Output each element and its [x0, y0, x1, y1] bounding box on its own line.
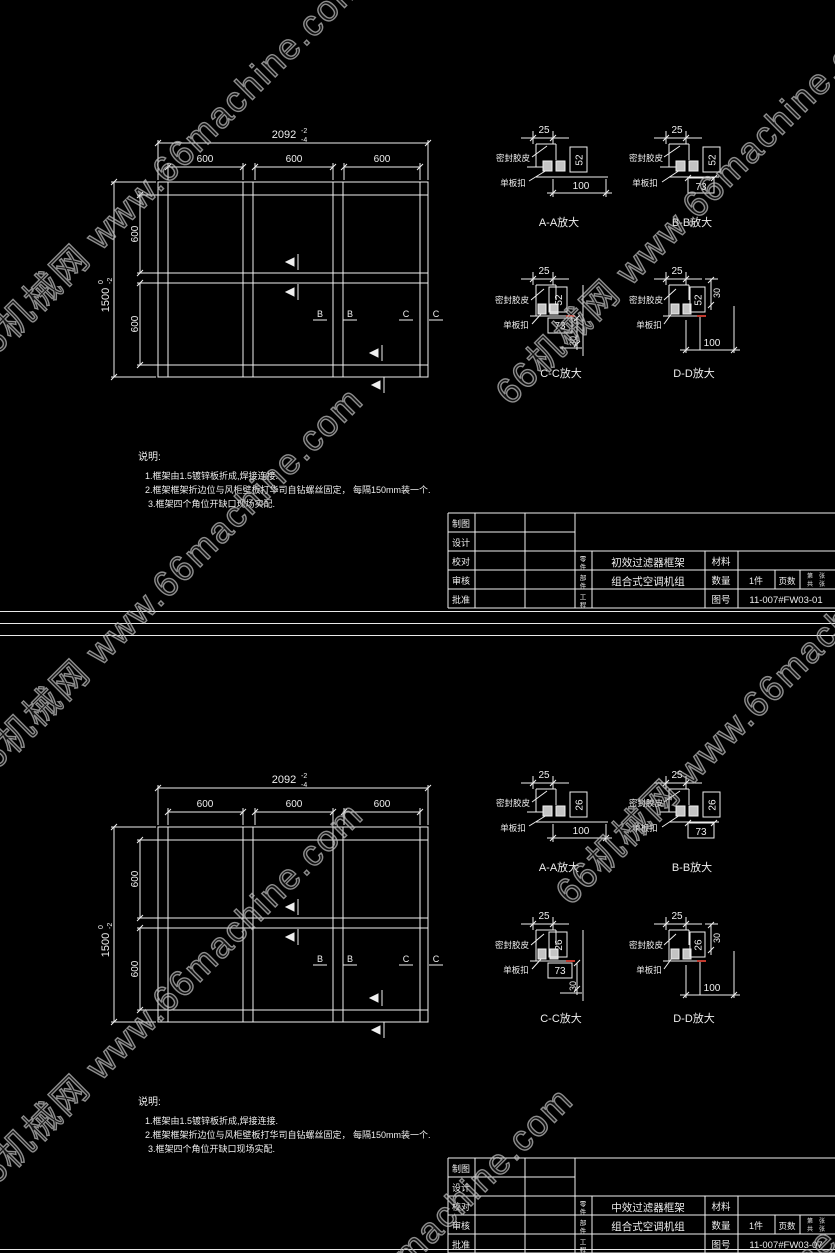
product-name: 组合式空调机组 — [611, 575, 685, 588]
dimension-lines — [111, 785, 428, 1022]
dim-overall-height-tol-up: 0 — [98, 280, 105, 284]
detail-dim-bottom: 73 — [695, 827, 707, 838]
detail-view-b-b: 25 52 73 密封胶皮 单板扣 B-B放大 — [629, 125, 720, 229]
detail-caption: B-B放大 — [672, 215, 712, 229]
note-item-1: 1.框架由1.5镀锌板折成,焊接连接. — [145, 470, 278, 481]
label-panel-clip: 单板扣 — [503, 965, 529, 975]
detail-dim-top: 25 — [671, 266, 683, 277]
dim-col-width-1: 600 — [197, 154, 214, 165]
label-seal-rubber: 密封胶皮 — [495, 940, 530, 950]
detail-dim-side: 52 — [708, 154, 719, 166]
page-no: 第 张 — [807, 572, 825, 580]
dim-col-width-2: 600 — [286, 799, 303, 810]
part-name: 初效过滤器框架 — [611, 556, 685, 569]
label-panel-clip: 单板扣 — [500, 823, 526, 833]
clip-hatch — [671, 304, 679, 314]
label-panel-clip: 单板扣 — [632, 178, 658, 188]
main-frame-drawing — [111, 785, 443, 1038]
detail-dim-top: 25 — [538, 125, 550, 136]
detail-view-a-a: 25 26 100 密封胶皮 单板扣 A-A放大 — [496, 770, 612, 874]
label-panel-clip: 单板扣 — [500, 178, 526, 188]
section-cut-bars — [298, 899, 443, 1038]
qty-label: 数量 — [711, 1220, 731, 1232]
detail-dim-side: 52 — [554, 294, 565, 306]
dim-overall-height-tol-low: -2 — [107, 278, 114, 284]
dim-overall-width: 2092 — [272, 774, 296, 786]
part-col-char: 零 — [580, 1200, 587, 1208]
main-drawing-dim-text: 2092 -2 -4 600 600 600 1500 0 -2 600 600… — [98, 773, 440, 977]
part-col-char: 件 — [580, 562, 587, 571]
label-seal-rubber: 密封胶皮 — [629, 295, 664, 305]
titleblock-row-reviewed: 审核 — [452, 575, 470, 586]
titleblock-row-approved: 批准 — [452, 594, 470, 605]
material-label: 材料 — [711, 1201, 731, 1213]
detail-dim-side: 26 — [708, 799, 719, 811]
titleblock-row-drafted: 制图 — [452, 1163, 470, 1174]
clip-hatch — [538, 304, 546, 314]
detail-caption: A-A放大 — [539, 860, 579, 874]
part-col-char: 部 — [580, 1218, 587, 1227]
dim-row-height-1: 600 — [130, 225, 141, 242]
clip-hatch — [676, 806, 685, 816]
detail-dim-top: 25 — [538, 911, 550, 922]
section-label-b2: B — [347, 309, 353, 319]
sheet-divider-line — [0, 635, 835, 636]
detail-caption: B-B放大 — [672, 860, 712, 874]
note-item-2: 2.框架框架折边位与风柜壁板打华司自钻螺丝固定， 每隔150mm装一个. — [145, 484, 431, 495]
part-col-char: 件 — [580, 581, 587, 590]
clip-hatch — [543, 806, 552, 816]
titleblock-row-checked: 校对 — [452, 1201, 470, 1212]
detail-dim-extra: 30 — [568, 336, 578, 346]
detail-dim-bottom: 73 — [695, 182, 707, 193]
title-block: 制图 设计 校对 审核 批准 零 件 部 件 工 程 中效过滤器框架 组合式空调… — [448, 1158, 835, 1253]
detail-view-c-c: 25 26 73 30 密封胶皮 单板扣 C-C放大 — [495, 911, 583, 1025]
section-label-c2: C — [433, 954, 440, 964]
main-drawing-dim-text: 2092 -2 -4 600 600 600 1500 0 -2 600 600… — [98, 128, 440, 332]
detail-dim-bottom: 100 — [573, 826, 590, 837]
label-seal-rubber: 密封胶皮 — [496, 153, 531, 163]
clip-hatch — [543, 161, 552, 171]
detail-view-d-d: 25 52 30 100 密封胶皮 单板扣 D-D放大 — [629, 266, 740, 380]
note-item-2: 2.框架框架折边位与风柜壁板打华司自钻螺丝固定， 每隔150mm装一个. — [145, 1129, 431, 1140]
dim-overall-height: 1500 — [100, 933, 112, 957]
detail-dim-side: 26 — [575, 799, 586, 811]
titleblock-row-reviewed: 审核 — [452, 1220, 470, 1231]
label-panel-clip: 单板扣 — [636, 320, 662, 330]
drawing-no-label: 图号 — [711, 595, 730, 606]
dim-overall-height-tol-low: -2 — [107, 923, 114, 929]
detail-view-a-a: 25 52 100 密封胶皮 单板扣 A-A放大 — [496, 125, 612, 229]
dim-overall-width: 2092 — [272, 129, 296, 141]
note-item-3: 3.框架四个角位开缺口现场实配. — [148, 498, 275, 509]
part-col-char: 工 — [580, 1239, 587, 1246]
sheet-divider-line — [0, 611, 835, 612]
qty-value: 1件 — [749, 575, 763, 586]
part-col-char: 件 — [580, 1207, 587, 1216]
dim-overall-width-tol-low: -4 — [301, 137, 307, 144]
note-item-1: 1.框架由1.5镀锌板折成,焊接连接. — [145, 1115, 278, 1126]
section-label-b2: B — [347, 954, 353, 964]
part-col-char: 部 — [580, 573, 587, 582]
detail-caption: D-D放大 — [673, 1011, 715, 1025]
titleblock-row-designed: 设计 — [452, 537, 470, 548]
drawing-sheet: 2092 -2 -4 600 600 600 1500 0 -2 600 600… — [0, 645, 835, 1253]
dimension-lines — [111, 140, 428, 377]
notes-title: 说明: — [138, 450, 161, 463]
detail-dim-top: 25 — [671, 770, 683, 781]
label-panel-clip: 单板扣 — [503, 320, 529, 330]
product-name: 组合式空调机组 — [611, 1220, 685, 1233]
titleblock-row-approved: 批准 — [452, 1239, 470, 1250]
frame-outline — [158, 827, 428, 1022]
dim-overall-height: 1500 — [100, 288, 112, 312]
sheet-divider-line — [0, 623, 835, 624]
clip-hatch — [689, 161, 698, 171]
dim-col-width-3: 600 — [374, 799, 391, 810]
dim-overall-width-tol-up: -2 — [301, 773, 307, 780]
detail-dim-bottom: 100 — [573, 181, 590, 192]
clip-hatch — [556, 161, 565, 171]
detail-caption: C-C放大 — [540, 366, 582, 380]
detail-dim-side: 26 — [694, 939, 705, 951]
drawing-sheet: 2092 -2 -4 600 600 600 1500 0 -2 600 600… — [0, 0, 835, 645]
detail-view-b-b: 25 26 73 密封胶皮 单板扣 B-B放大 — [629, 770, 720, 874]
titleblock-row-drafted: 制图 — [452, 518, 470, 529]
main-frame-drawing — [111, 140, 443, 393]
label-seal-rubber: 密封胶皮 — [496, 798, 531, 808]
detail-view-d-d: 25 26 30 100 密封胶皮 单板扣 D-D放大 — [629, 911, 740, 1025]
detail-dim-side: 52 — [575, 154, 586, 166]
page-no: 第 张 — [807, 1217, 825, 1225]
detail-dim-side: 52 — [694, 294, 705, 306]
detail-dim-top: 25 — [538, 770, 550, 781]
label-panel-clip: 单板扣 — [632, 823, 658, 833]
part-col-char: 零 — [580, 555, 587, 563]
frame-outline — [158, 182, 428, 377]
dimension-ticks — [111, 785, 431, 1025]
pages-label: 页数 — [778, 576, 796, 586]
detail-dim-side: 26 — [554, 939, 565, 951]
section-cut-bars — [298, 254, 443, 393]
detail-dim-bottom: 100 — [704, 983, 721, 994]
notes-block: 说明: 1.框架由1.5镀锌板折成,焊接连接. 2.框架框架折边位与风柜壁板打华… — [138, 1095, 431, 1154]
dimension-ticks — [111, 140, 431, 380]
clip-hatch — [538, 949, 546, 959]
note-item-3: 3.框架四个角位开缺口现场实配. — [148, 1143, 275, 1154]
notes-title: 说明: — [138, 1095, 161, 1108]
section-label-c1: C — [403, 954, 410, 964]
detail-caption: A-A放大 — [539, 215, 579, 229]
qty-value: 1件 — [749, 1220, 763, 1231]
detail-view-c-c: 25 52 73 30 密封胶皮 单板扣 C-C放大 — [495, 266, 583, 380]
detail-caption: C-C放大 — [540, 1011, 582, 1025]
material-label: 材料 — [711, 556, 731, 568]
label-seal-rubber: 密封胶皮 — [629, 153, 664, 163]
drawing-no: 11-007#FW03-07 — [749, 1240, 822, 1251]
section-label-c2: C — [433, 309, 440, 319]
detail-dim-bottom: 73 — [554, 966, 566, 977]
dim-col-width-2: 600 — [286, 154, 303, 165]
section-label-c1: C — [403, 309, 410, 319]
label-panel-clip: 单板扣 — [636, 965, 662, 975]
dim-row-height-2: 600 — [130, 315, 141, 332]
section-label-b1: B — [317, 954, 323, 964]
label-seal-rubber: 密封胶皮 — [495, 295, 530, 305]
title-block: 制图 设计 校对 审核 批准 零 件 部 件 工 程 初效过滤器框架 组合式空调… — [448, 513, 835, 609]
drawing-no: 11-007#FW03-01 — [749, 595, 822, 606]
detail-dim-top: 25 — [671, 911, 683, 922]
dim-col-width-3: 600 — [374, 154, 391, 165]
page-total: 共 张 — [807, 1225, 825, 1233]
clip-hatch — [671, 949, 679, 959]
clip-hatch — [676, 161, 685, 171]
detail-dim-extra: 30 — [712, 933, 722, 943]
part-name: 中效过滤器框架 — [611, 1201, 685, 1214]
qty-label: 数量 — [711, 575, 731, 587]
part-col-char: 程 — [580, 600, 587, 609]
label-seal-rubber: 密封胶皮 — [629, 940, 664, 950]
detail-dim-top: 25 — [538, 266, 550, 277]
detail-dim-extra: 30 — [568, 981, 578, 991]
clip-hatch — [556, 806, 565, 816]
detail-dim-top: 25 — [671, 125, 683, 136]
detail-caption: D-D放大 — [673, 366, 715, 380]
label-seal-rubber: 密封胶皮 — [629, 798, 664, 808]
part-col-char: 件 — [580, 1226, 587, 1235]
part-col-char: 程 — [580, 1245, 587, 1253]
page-total: 共 张 — [807, 580, 825, 588]
drawing-no-label: 图号 — [711, 1240, 730, 1251]
cad-sheet-page: 2092 -2 -4 600 600 600 1500 0 -2 600 600… — [0, 0, 835, 1253]
pages-label: 页数 — [778, 1221, 796, 1231]
detail-dim-bottom: 100 — [704, 338, 721, 349]
dim-overall-width-tol-up: -2 — [301, 128, 307, 135]
detail-dim-extra: 30 — [712, 288, 722, 298]
titleblock-row-checked: 校对 — [452, 556, 470, 567]
notes-block: 说明: 1.框架由1.5镀锌板折成,焊接连接. 2.框架框架折边位与风柜壁板打华… — [138, 450, 431, 509]
titleblock-row-designed: 设计 — [452, 1182, 470, 1193]
dim-overall-width-tol-low: -4 — [301, 782, 307, 789]
section-label-b1: B — [317, 309, 323, 319]
dim-overall-height-tol-up: 0 — [98, 925, 105, 929]
dim-row-height-2: 600 — [130, 960, 141, 977]
dim-row-height-1: 600 — [130, 870, 141, 887]
part-col-char: 工 — [580, 594, 587, 601]
dim-col-width-1: 600 — [197, 799, 214, 810]
detail-dim-bottom: 73 — [554, 321, 566, 332]
clip-hatch — [689, 806, 698, 816]
